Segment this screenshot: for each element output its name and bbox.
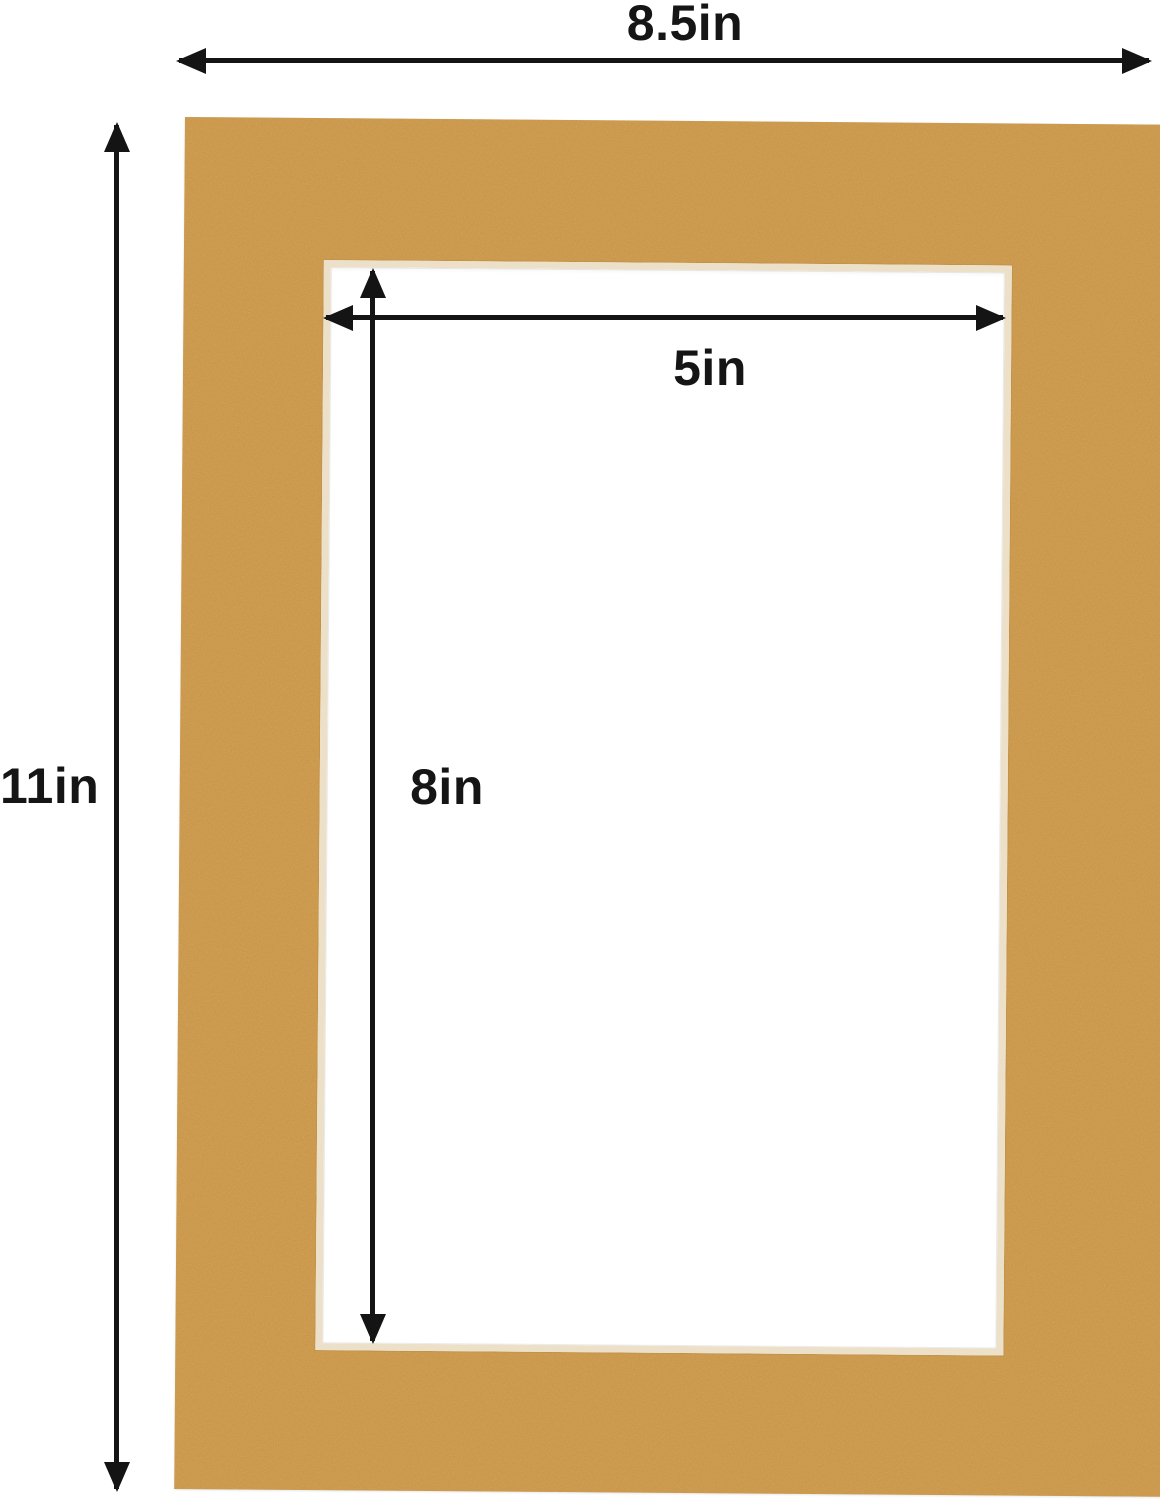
arrowhead-right-icon <box>976 305 1006 331</box>
dimension-line <box>114 125 119 1489</box>
overall-height-label: 11in <box>0 760 96 812</box>
dimension-line <box>179 58 1149 63</box>
dimension-arrow-opening-width <box>323 305 1006 331</box>
dimension-arrow-overall-height <box>104 122 130 1492</box>
arrowhead-right-icon <box>1122 48 1152 74</box>
arrowhead-down-icon <box>104 1462 130 1492</box>
dimension-arrow-overall-width <box>176 48 1152 74</box>
overall-width-label: 8.5in <box>535 0 835 49</box>
dimension-line <box>326 315 1003 320</box>
opening-width-label: 5in <box>585 342 835 394</box>
opening-height-label: 8in <box>322 761 572 813</box>
arrowhead-down-icon <box>360 1314 386 1344</box>
